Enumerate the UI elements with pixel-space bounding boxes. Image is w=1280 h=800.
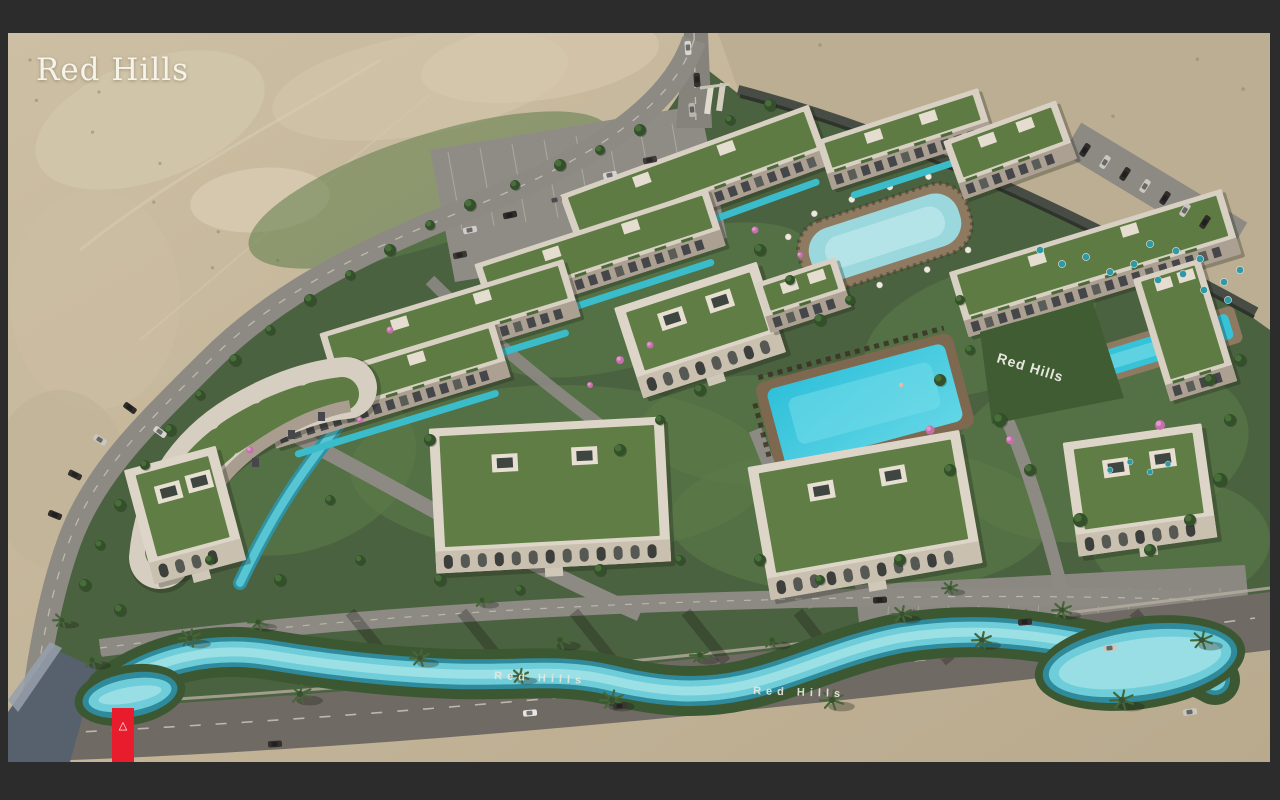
scenery-layer [8,33,1270,762]
aerial-render: Red Hills Red Hills Red Hills [8,33,1270,762]
render-scene: Red Hills Red Hills Red Hills [8,33,1270,762]
screenshot-frame: Red Hills Red Hills Red Hills Red Hills … [0,0,1280,800]
map-marker-button[interactable]: △ [112,708,134,762]
brand-logo: Red Hills [36,52,189,88]
triangle-icon: △ [119,721,127,732]
